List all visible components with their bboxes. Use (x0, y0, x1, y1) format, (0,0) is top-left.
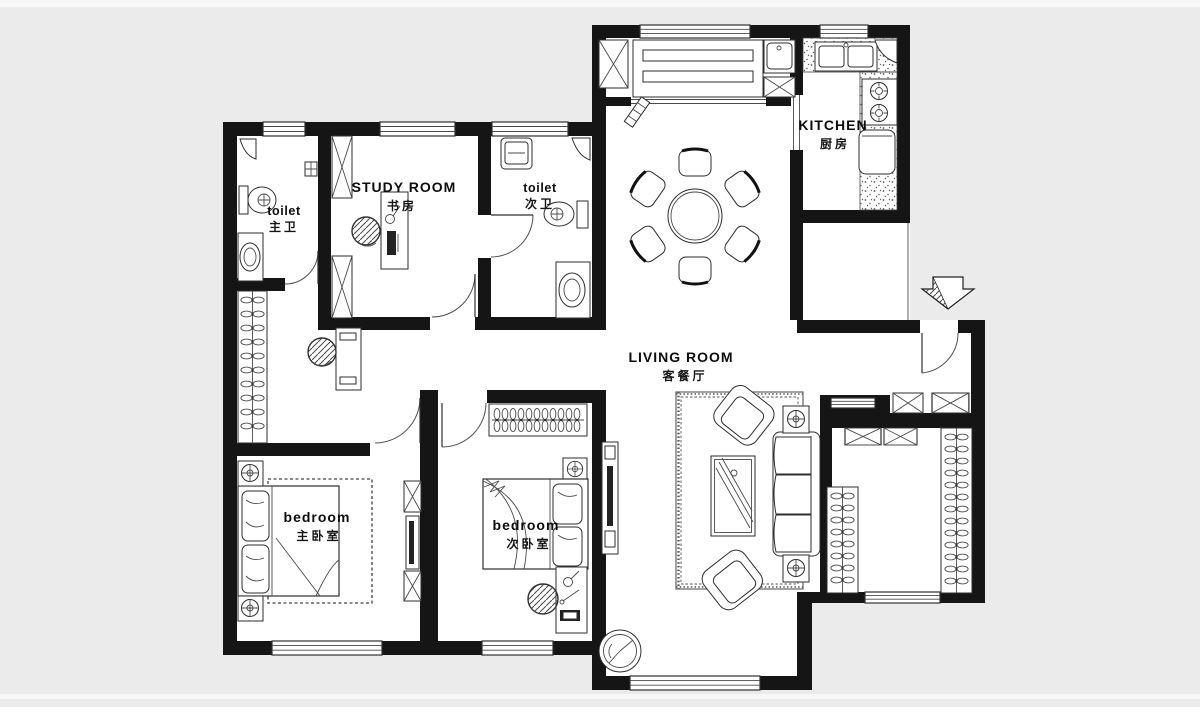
bookshelf (332, 136, 352, 198)
top-frame-line (0, 0, 1200, 7)
room-label-cn-bedroom-master: 主卧室 (296, 528, 341, 543)
room-label-living: LIVING ROOM (628, 349, 733, 365)
nightstand (238, 596, 263, 621)
window (492, 122, 568, 136)
dining-chair (679, 257, 711, 284)
room-label-cn-study: 书房 (387, 198, 417, 213)
room-label-cn-toilet-master: 主卫 (269, 219, 299, 234)
dressing-table (336, 328, 361, 390)
nightstand (238, 461, 263, 486)
tv-cabinet (404, 481, 421, 601)
dining-table (668, 189, 722, 243)
room-label-study: STUDY ROOM (352, 179, 457, 195)
room-label-cn-living: 客餐厅 (661, 368, 707, 383)
cabinet (599, 40, 628, 88)
floor-plan: toilet 主卫 STUDY ROOM 书房 (0, 0, 1200, 707)
window (640, 25, 750, 38)
kitchen-sink (815, 42, 877, 71)
wardrobe (827, 487, 858, 593)
wardrobe (489, 404, 587, 436)
counter (633, 40, 763, 97)
washing-machine (501, 138, 532, 169)
bookshelf (332, 256, 352, 318)
window (482, 641, 553, 655)
desk-chair (528, 584, 558, 614)
window (272, 641, 382, 655)
shoe-cabinet (893, 393, 923, 413)
side-table (783, 555, 809, 582)
sofa (773, 432, 820, 556)
room-label-bedroom-master: bedroom (284, 509, 351, 525)
wardrobe (238, 291, 267, 443)
room-label-toilet-second: toilet (523, 181, 557, 195)
desk-chair (352, 217, 380, 246)
room-label-cn-toilet-second: 次卫 (525, 196, 555, 211)
cabinet (845, 428, 881, 445)
window (630, 676, 760, 690)
room-label-cn-bedroom-second: 次卧室 (506, 536, 551, 551)
wardrobe (941, 428, 972, 593)
window (820, 25, 868, 38)
window (380, 122, 455, 136)
cabinet (764, 77, 795, 97)
tv-cabinet (602, 442, 618, 554)
window (831, 398, 875, 408)
shoe-cabinet (932, 393, 969, 413)
dining-chair (679, 149, 711, 176)
window (865, 592, 940, 603)
side-table (783, 406, 809, 433)
washbasin (556, 262, 590, 318)
water-heater (305, 162, 317, 176)
room-label-kitchen: KITCHEN (798, 117, 867, 133)
cabinet (884, 428, 917, 445)
stool (308, 338, 336, 366)
desk (556, 567, 587, 633)
room-label-bedroom-second: bedroom (493, 517, 560, 533)
floor-plan-page: toilet 主卫 STUDY ROOM 书房 (0, 0, 1200, 707)
laundry-sink (764, 40, 795, 73)
window (263, 122, 305, 136)
washbasin (238, 233, 263, 281)
bottom-frame-line (0, 694, 1200, 699)
refrigerator (859, 130, 895, 174)
floor-lamp (599, 630, 641, 672)
coffee-table (711, 456, 755, 536)
room-label-toilet-master: toilet (267, 204, 301, 218)
room-label-cn-kitchen: 厨房 (820, 136, 850, 151)
nightstand (563, 458, 587, 480)
